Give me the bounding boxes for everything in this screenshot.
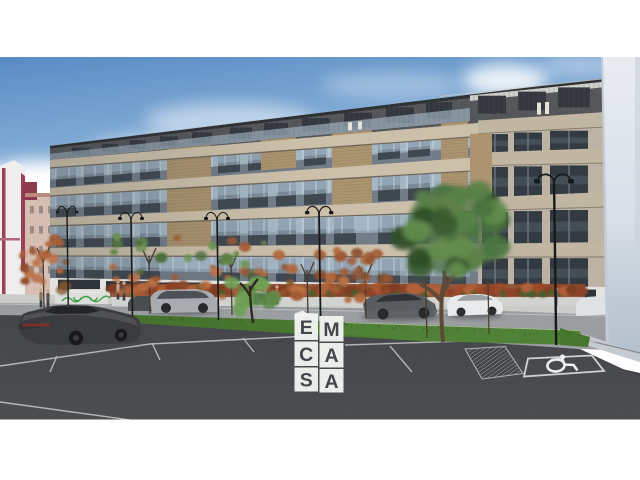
svg-text:E: E xyxy=(300,317,313,339)
svg-text:A: A xyxy=(324,371,338,393)
svg-text:S: S xyxy=(300,370,313,392)
svg-text:C: C xyxy=(299,344,313,366)
svg-text:M: M xyxy=(323,319,339,341)
svg-text:A: A xyxy=(324,345,338,367)
